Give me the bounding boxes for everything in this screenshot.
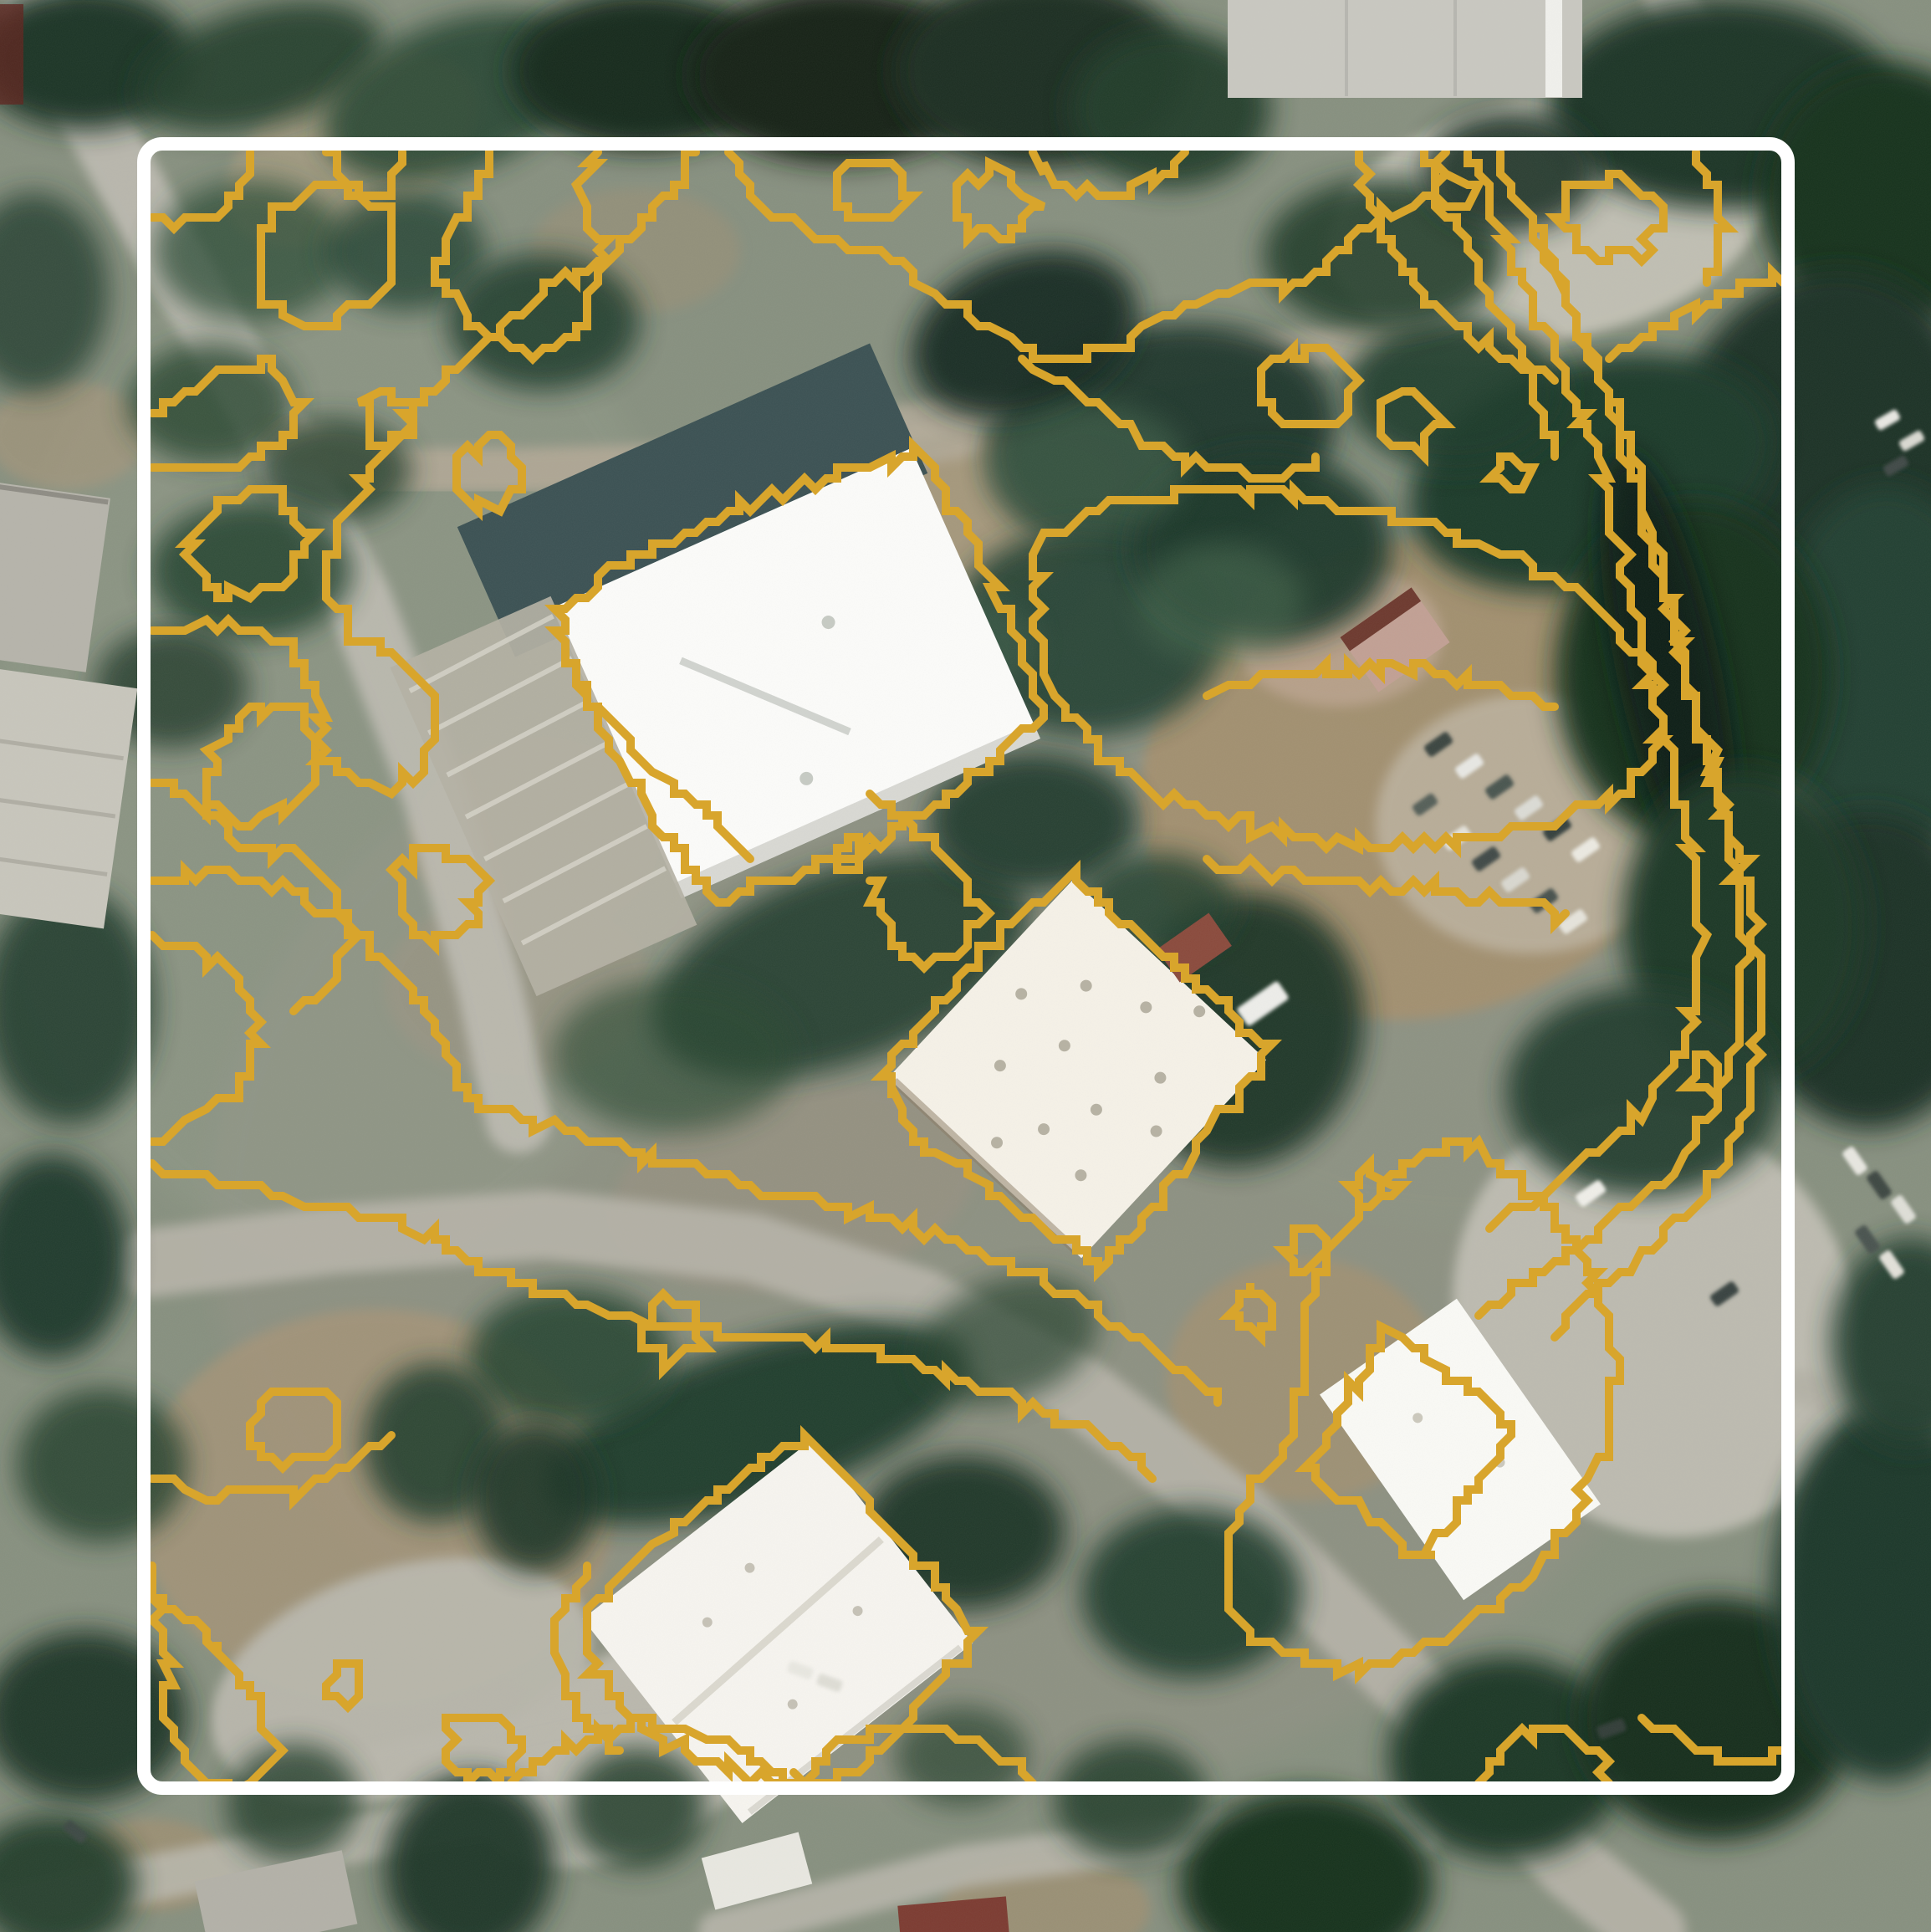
map-canvas [0,0,1931,1932]
satellite-map-view [0,0,1931,1932]
